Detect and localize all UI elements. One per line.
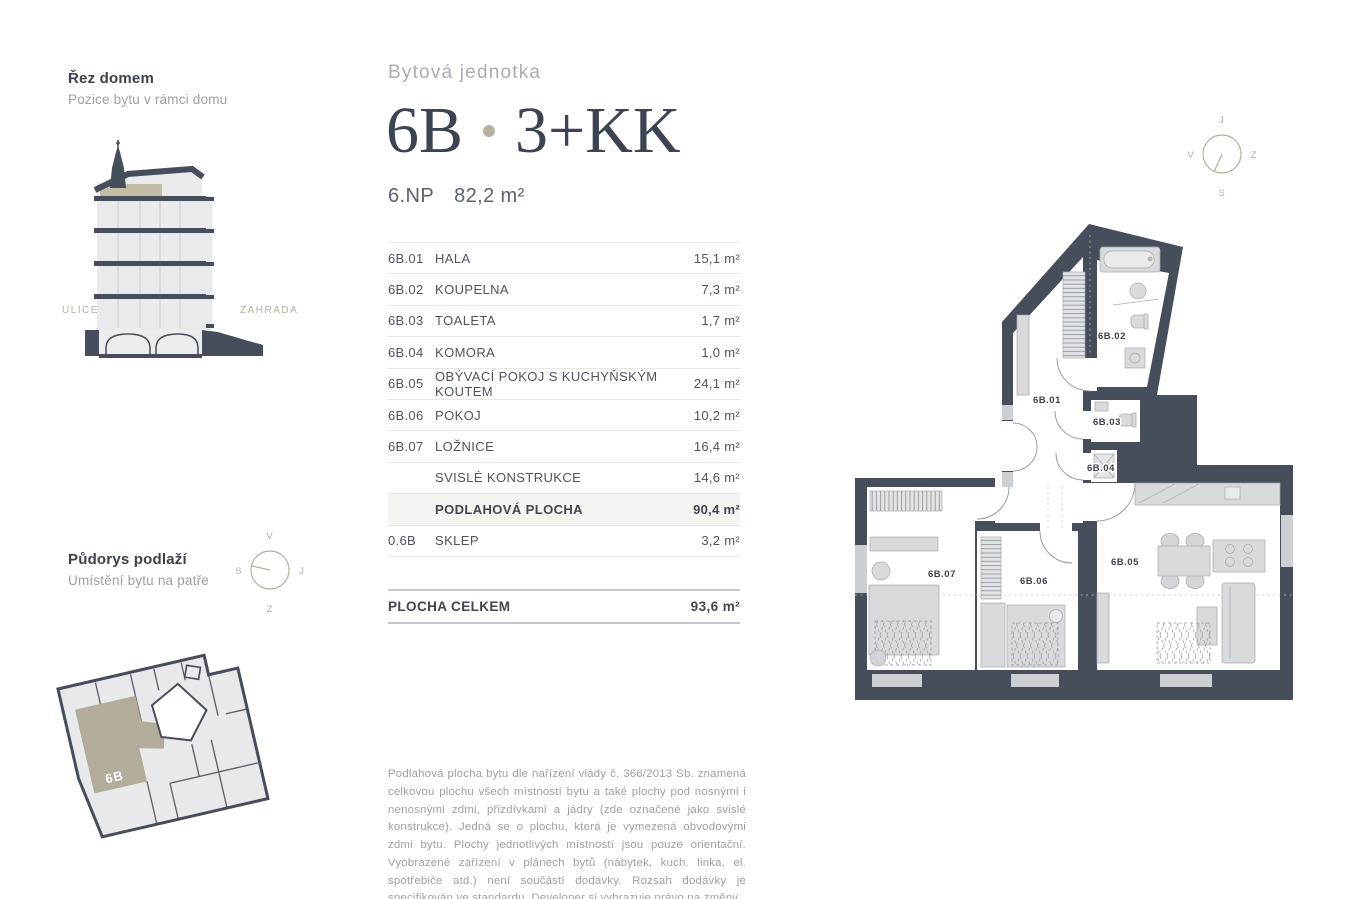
unit-title: 6B 3+KK — [386, 98, 681, 164]
room-code: 0.6B — [388, 533, 435, 548]
table-row: 6B.02 KOUPELNA 7,3 m² — [388, 274, 740, 305]
room-area: 15,1 m² — [694, 251, 740, 266]
loznice-chair — [872, 562, 890, 580]
loznice-shelf — [870, 537, 938, 551]
wc-sink — [1095, 402, 1108, 411]
compass-top-label: V — [266, 531, 273, 542]
unit-layout: 3+KK — [515, 98, 681, 164]
room-area: 10,2 m² — [694, 408, 740, 423]
floor-title: Půdorys podlaží — [68, 551, 209, 568]
room-area: 14,6 m² — [694, 470, 740, 485]
compass-needle — [252, 566, 271, 570]
garden-label: ZAHRADA — [240, 305, 298, 316]
street-label: ULICE — [62, 305, 99, 316]
room-name: TOALETA — [435, 313, 701, 328]
room-area: 7,3 m² — [701, 282, 740, 297]
bathtub — [1100, 247, 1160, 272]
pokoj-cabinet — [981, 603, 1005, 667]
loznice-bed — [869, 585, 939, 666]
room-area: 1,0 m² — [701, 345, 740, 360]
living-wardrobe — [1157, 623, 1210, 663]
section-panel-header: Řez domem Pozice bytu v rámci domu — [68, 70, 227, 107]
room-area: 16,4 m² — [694, 439, 740, 454]
table-row: 6B.03 TOALETA 1,7 m² — [388, 306, 740, 337]
hall-cabinet — [1017, 315, 1029, 395]
unit-floor: 6.NP — [388, 185, 434, 208]
room-label: 6B.07 — [928, 569, 956, 580]
building-section-drawing: ULICE ZAHRADA — [40, 138, 320, 368]
table-row: 6B.04 KOMORA 1,0 m² — [388, 337, 740, 368]
building-body — [94, 140, 214, 330]
living-cabinet — [1097, 593, 1109, 663]
table-row: 6B.05 OBÝVACÍ POKOJ S KUCHYŇSKÝM KOUTEM … — [388, 369, 740, 400]
room-name: KOMORA — [435, 345, 701, 360]
spire — [110, 140, 126, 188]
room-code: 6B.06 — [388, 408, 435, 423]
room-name: HALA — [435, 251, 694, 266]
unit-id: 6B — [386, 98, 463, 164]
area-table: 6B.01 HALA 15,1 m² 6B.02 KOUPELNA 7,3 m²… — [388, 242, 740, 624]
room-code: 6B.02 — [388, 282, 435, 297]
table-row: SVISLÉ KONSTRUKCE 14,6 m² — [388, 463, 740, 494]
room-code: 6B.01 — [388, 251, 435, 266]
compass-top-label: J — [1219, 115, 1225, 126]
room-code: 6B.05 — [388, 376, 435, 391]
room-name: OBÝVACÍ POKOJ S KUCHYŇSKÝM KOUTEM — [435, 369, 694, 399]
room-area: 24,1 m² — [694, 376, 740, 391]
brochure-page: Řez domem Pozice bytu v rámci domu — [0, 0, 1365, 899]
table-total-row: PLOCHA CELKEM 93,6 m² — [388, 589, 740, 624]
room-area: 3,2 m² — [701, 533, 740, 548]
room-name: SKLEP — [435, 533, 701, 548]
room-name: POKOJ — [435, 408, 694, 423]
table-row-subtotal: PODLAHOVÁ PLOCHA 90,4 m² — [388, 494, 740, 525]
floor-subtitle: Umístění bytu na patře — [68, 573, 209, 588]
floor-panel-header: Půdorys podlaží Umístění bytu na patře — [68, 551, 209, 588]
table-row: 0.6B SKLEP 3,2 m² — [388, 526, 740, 557]
room-name: SVISLÉ KONSTRUKCE — [435, 470, 694, 485]
unit-area: 82,2 m² — [454, 185, 525, 208]
apartment-floor-plan: 6B.01 6B.02 6B.03 6B.04 6B.05 6B.06 6B.0… — [845, 215, 1305, 715]
section-subtitle: Pozice bytu v rámci domu — [68, 92, 227, 107]
compass-bottom-label: Z — [267, 604, 274, 615]
room-code: 6B.07 — [388, 439, 435, 454]
floor-plate-plan: 6B — [42, 628, 292, 863]
kitchen-sink — [1225, 487, 1240, 499]
room-area: 90,4 m² — [693, 502, 740, 517]
table-row: 6B.07 LOŽNICE 16,4 m² — [388, 431, 740, 462]
room-area: 1,7 m² — [701, 313, 740, 328]
room-name: LOŽNICE — [435, 439, 694, 454]
unit-floor-area: 6.NP 82,2 m² — [388, 185, 525, 208]
pokoj-bed — [1007, 605, 1065, 667]
room-label: 6B.02 — [1098, 331, 1126, 342]
total-label: PLOCHA CELKEM — [388, 599, 691, 614]
disclaimer-text: Podlahová plocha bytu dle nařízení vlády… — [388, 766, 746, 899]
room-label: 6B.04 — [1087, 463, 1115, 474]
sink — [1130, 283, 1146, 299]
room-label: 6B.01 — [1033, 395, 1061, 406]
separator-dot-icon — [483, 125, 495, 137]
room-name: PODLAHOVÁ PLOCHA — [435, 502, 693, 517]
wc-toilet — [1119, 413, 1136, 427]
table-row: 6B.01 HALA 15,1 m² — [388, 242, 740, 274]
compass-bottom-label: S — [1218, 188, 1225, 199]
room-label: 6B.05 — [1111, 557, 1139, 568]
sofa — [1222, 583, 1255, 663]
compass-right-label: J — [299, 566, 305, 577]
total-value: 93,6 m² — [691, 599, 740, 614]
room-label: 6B.06 — [1020, 576, 1048, 587]
compass-needle — [1214, 154, 1222, 172]
room-code: 6B.03 — [388, 313, 435, 328]
cooktop-counter — [1213, 540, 1265, 572]
compass-left-label: V — [1187, 150, 1194, 161]
room-label: 6B.03 — [1093, 417, 1121, 428]
section-title: Řez domem — [68, 70, 227, 87]
compass-left-label: S — [235, 566, 242, 577]
unit-eyebrow: Bytová jednotka — [388, 62, 541, 84]
washing-machine — [1125, 348, 1145, 368]
room-code: 6B.04 — [388, 345, 435, 360]
toilet — [1131, 314, 1148, 329]
table-row: 6B.06 POKOJ 10,2 m² — [388, 400, 740, 431]
compass-icon: V S J Z — [225, 522, 315, 617]
compass-right-label: Z — [1251, 150, 1258, 161]
compass-icon: J V Z S — [1177, 106, 1267, 201]
room-name: KOUPELNA — [435, 282, 701, 297]
ground — [85, 330, 263, 358]
